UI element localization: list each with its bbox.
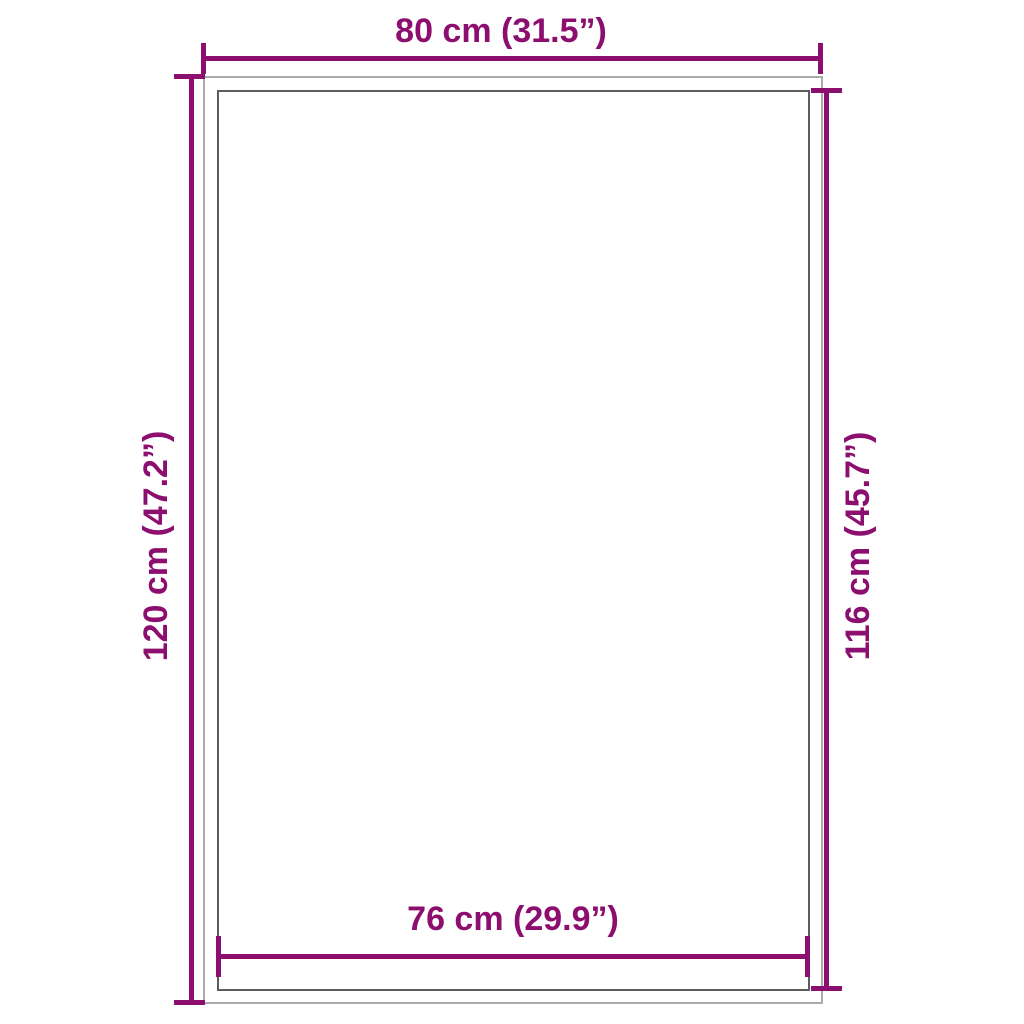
top-dimension-right-tick [818, 43, 823, 74]
top-dimension-label: 80 cm (31.5”) [395, 14, 607, 48]
bottom-dimension-right-tick [805, 936, 810, 977]
right-dimension-bottom-tick [811, 986, 842, 991]
right-dimension-line [824, 90, 829, 991]
left-dimension-label: 120 cm (47.2”) [139, 431, 173, 662]
bottom-dimension-label: 76 cm (29.9”) [407, 902, 619, 936]
dimension-diagram: 80 cm (31.5”) 120 cm (47.2”) 116 cm (45.… [0, 0, 1024, 1024]
right-dimension-top-tick [811, 88, 842, 93]
left-dimension-line [189, 76, 194, 1004]
left-dimension-bottom-tick [174, 1000, 205, 1005]
top-dimension-left-tick [201, 43, 206, 74]
right-dimension-label: 116 cm (45.7”) [841, 432, 875, 661]
left-dimension-top-tick [174, 74, 205, 79]
top-dimension-line [203, 56, 823, 61]
inner-rectangle [217, 90, 810, 991]
bottom-dimension-line [217, 954, 810, 959]
bottom-dimension-left-tick [216, 936, 221, 977]
